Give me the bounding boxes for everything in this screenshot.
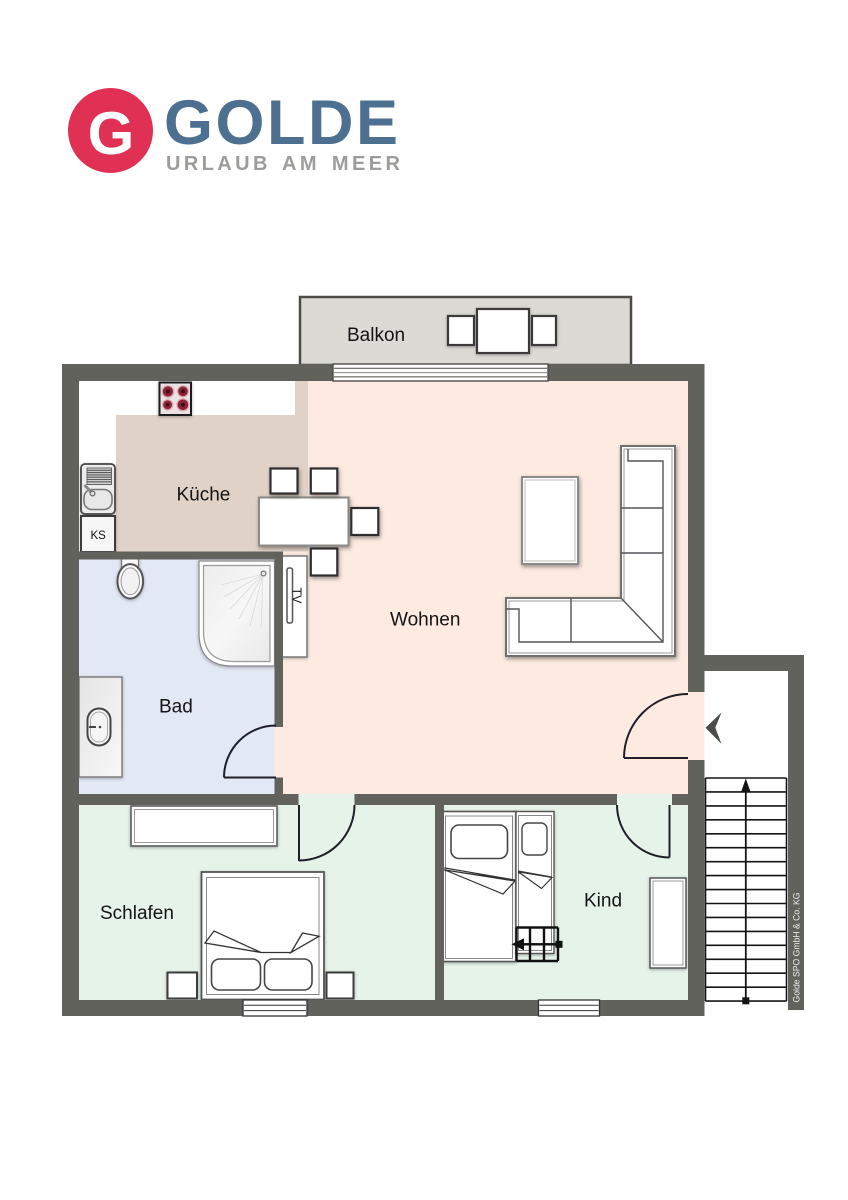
svg-text:GOLDE: GOLDE — [164, 88, 401, 158]
svg-text:Wohnen: Wohnen — [390, 610, 460, 631]
svg-text:G: G — [88, 100, 135, 167]
svg-text:Schlafen: Schlafen — [100, 903, 174, 924]
svg-text:URLAUB AM MEER: URLAUB AM MEER — [166, 153, 403, 175]
svg-text:TV: TV — [290, 588, 304, 605]
svg-text:KS: KS — [91, 530, 107, 542]
svg-text:Kind: Kind — [584, 891, 622, 912]
svg-text:Balkon: Balkon — [347, 325, 405, 346]
svg-text:Golde SPO GmbH & Co. KG: Golde SPO GmbH & Co. KG — [792, 893, 802, 1003]
svg-text:Küche: Küche — [177, 485, 231, 506]
svg-text:Bad: Bad — [159, 697, 193, 718]
